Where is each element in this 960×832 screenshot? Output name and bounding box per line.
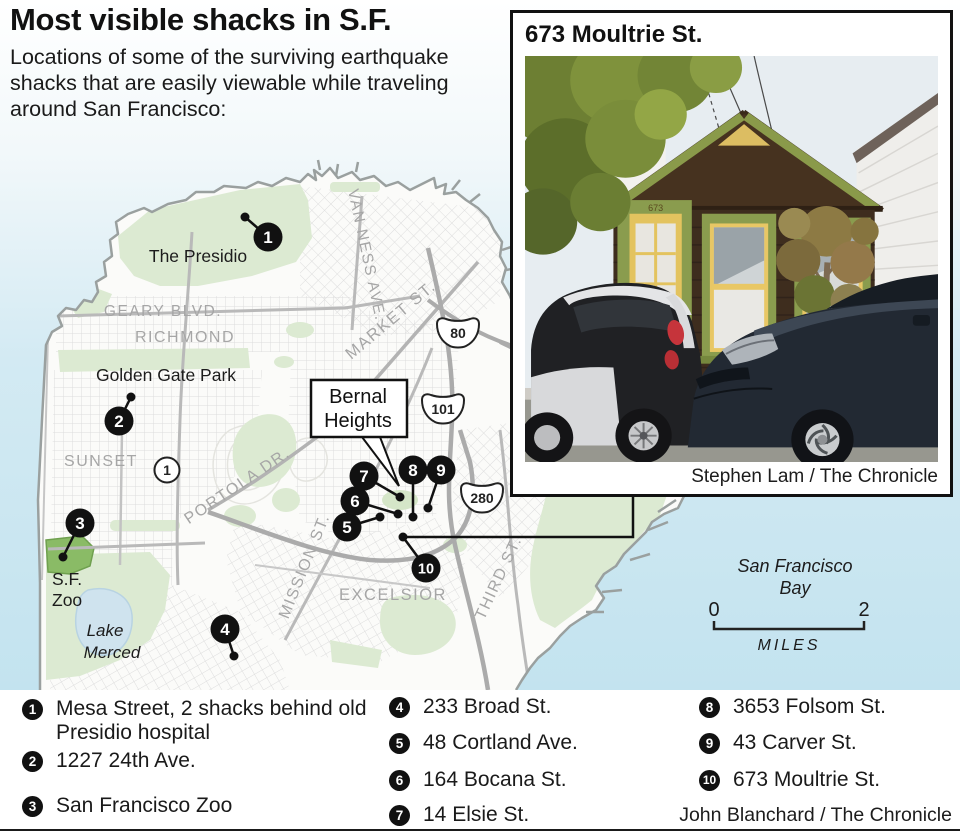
legend-label-5: 48 Cortland Ave. <box>423 731 578 755</box>
legend-item-5: 5 48 Cortland Ave. <box>389 731 578 755</box>
legend-item-10: 10 673 Moultrie St. <box>699 768 880 792</box>
legend-item-4: 4 233 Broad St. <box>389 695 551 719</box>
shack-photo: 673 <box>525 56 938 462</box>
legend-badge-7: 7 <box>389 805 410 826</box>
svg-text:1: 1 <box>163 462 171 478</box>
legend-badge-3: 3 <box>22 796 43 817</box>
legend-badge-9: 9 <box>699 733 720 754</box>
header: Most visible shacks in S.F. Locations of… <box>10 4 500 122</box>
label-sf-bay-2: Bay <box>779 578 811 598</box>
house-number: 673 <box>648 203 663 213</box>
legend: 1 Mesa Street, 2 shacks behind old Presi… <box>0 690 960 832</box>
svg-text:2: 2 <box>114 412 123 431</box>
legend-item-1: 1 Mesa Street, 2 shacks behind old Presi… <box>22 697 372 744</box>
svg-text:80: 80 <box>450 325 466 341</box>
graphic-credit: John Blanchard / The Chronicle <box>679 804 952 827</box>
svg-text:3: 3 <box>75 514 84 533</box>
legend-item-9: 9 43 Carver St. <box>699 731 857 755</box>
svg-text:7: 7 <box>359 467 368 486</box>
legend-badge-1: 1 <box>22 699 43 720</box>
legend-label-10: 673 Moultrie St. <box>733 768 880 792</box>
svg-text:101: 101 <box>431 401 455 417</box>
svg-text:1: 1 <box>263 228 272 247</box>
svg-text:9: 9 <box>436 461 445 480</box>
page-title: Most visible shacks in S.F. <box>10 4 500 37</box>
smart-car <box>525 283 703 462</box>
legend-item-3: 3 San Francisco Zoo <box>22 794 232 818</box>
page-subtitle: Locations of some of the surviving earth… <box>10 44 480 123</box>
legend-badge-5: 5 <box>389 733 410 754</box>
legend-badge-4: 4 <box>389 697 410 718</box>
label-sunset: SUNSET <box>64 453 138 470</box>
legend-label-2: 1227 24th Ave. <box>56 749 196 773</box>
label-golden-gate-park: Golden Gate Park <box>96 365 236 385</box>
legend-badge-10: 10 <box>699 770 720 791</box>
photo-inset: 673 Moultrie St. <box>510 10 953 497</box>
photo-title: 673 Moultrie St. <box>525 21 938 49</box>
legend-label-8: 3653 Folsom St. <box>733 695 886 719</box>
svg-text:6: 6 <box>350 492 359 511</box>
legend-label-3: San Francisco Zoo <box>56 794 232 818</box>
svg-text:Bernal: Bernal <box>329 386 387 408</box>
legend-badge-8: 8 <box>699 697 720 718</box>
svg-text:10: 10 <box>418 562 434 578</box>
svg-text:8: 8 <box>408 461 417 480</box>
svg-text:0: 0 <box>708 599 719 621</box>
legend-label-6: 164 Bocana St. <box>423 768 567 792</box>
legend-item-2: 2 1227 24th Ave. <box>22 749 196 773</box>
bottom-border <box>0 829 960 831</box>
label-geary-blvd: GEARY BLVD. <box>104 303 222 320</box>
label-sf-zoo-1: S.F. <box>52 569 82 589</box>
legend-item-7: 7 14 Elsie St. <box>389 803 529 827</box>
svg-text:2: 2 <box>858 599 869 621</box>
label-presidio: The Presidio <box>149 246 247 266</box>
infographic-canvas: GEARY BLVD. RICHMOND SUNSET EXCELSIOR PO… <box>0 0 960 832</box>
label-lake-merced-2: Merced <box>84 643 141 662</box>
label-lake-merced-1: Lake <box>87 621 124 640</box>
legend-label-1: Mesa Street, 2 shacks behind old Presidi… <box>56 697 372 744</box>
svg-text:MILES: MILES <box>757 637 820 654</box>
label-sf-bay-1: San Francisco <box>737 556 852 576</box>
label-richmond: RICHMOND <box>135 329 235 346</box>
legend-item-6: 6 164 Bocana St. <box>389 768 567 792</box>
legend-label-7: 14 Elsie St. <box>423 803 529 827</box>
legend-label-9: 43 Carver St. <box>733 731 857 755</box>
legend-badge-2: 2 <box>22 751 43 772</box>
legend-badge-6: 6 <box>389 770 410 791</box>
svg-text:4: 4 <box>220 620 230 639</box>
legend-item-8: 8 3653 Folsom St. <box>699 695 886 719</box>
svg-text:5: 5 <box>342 518 351 537</box>
photo-credit: Stephen Lam / The Chronicle <box>525 466 938 488</box>
shield-ca1: 1 <box>155 458 180 483</box>
svg-text:280: 280 <box>470 490 494 506</box>
label-excelsior: EXCELSIOR <box>339 586 447 604</box>
legend-label-4: 233 Broad St. <box>423 695 551 719</box>
svg-text:Heights: Heights <box>324 410 392 432</box>
label-sf-zoo-2: Zoo <box>52 590 82 610</box>
